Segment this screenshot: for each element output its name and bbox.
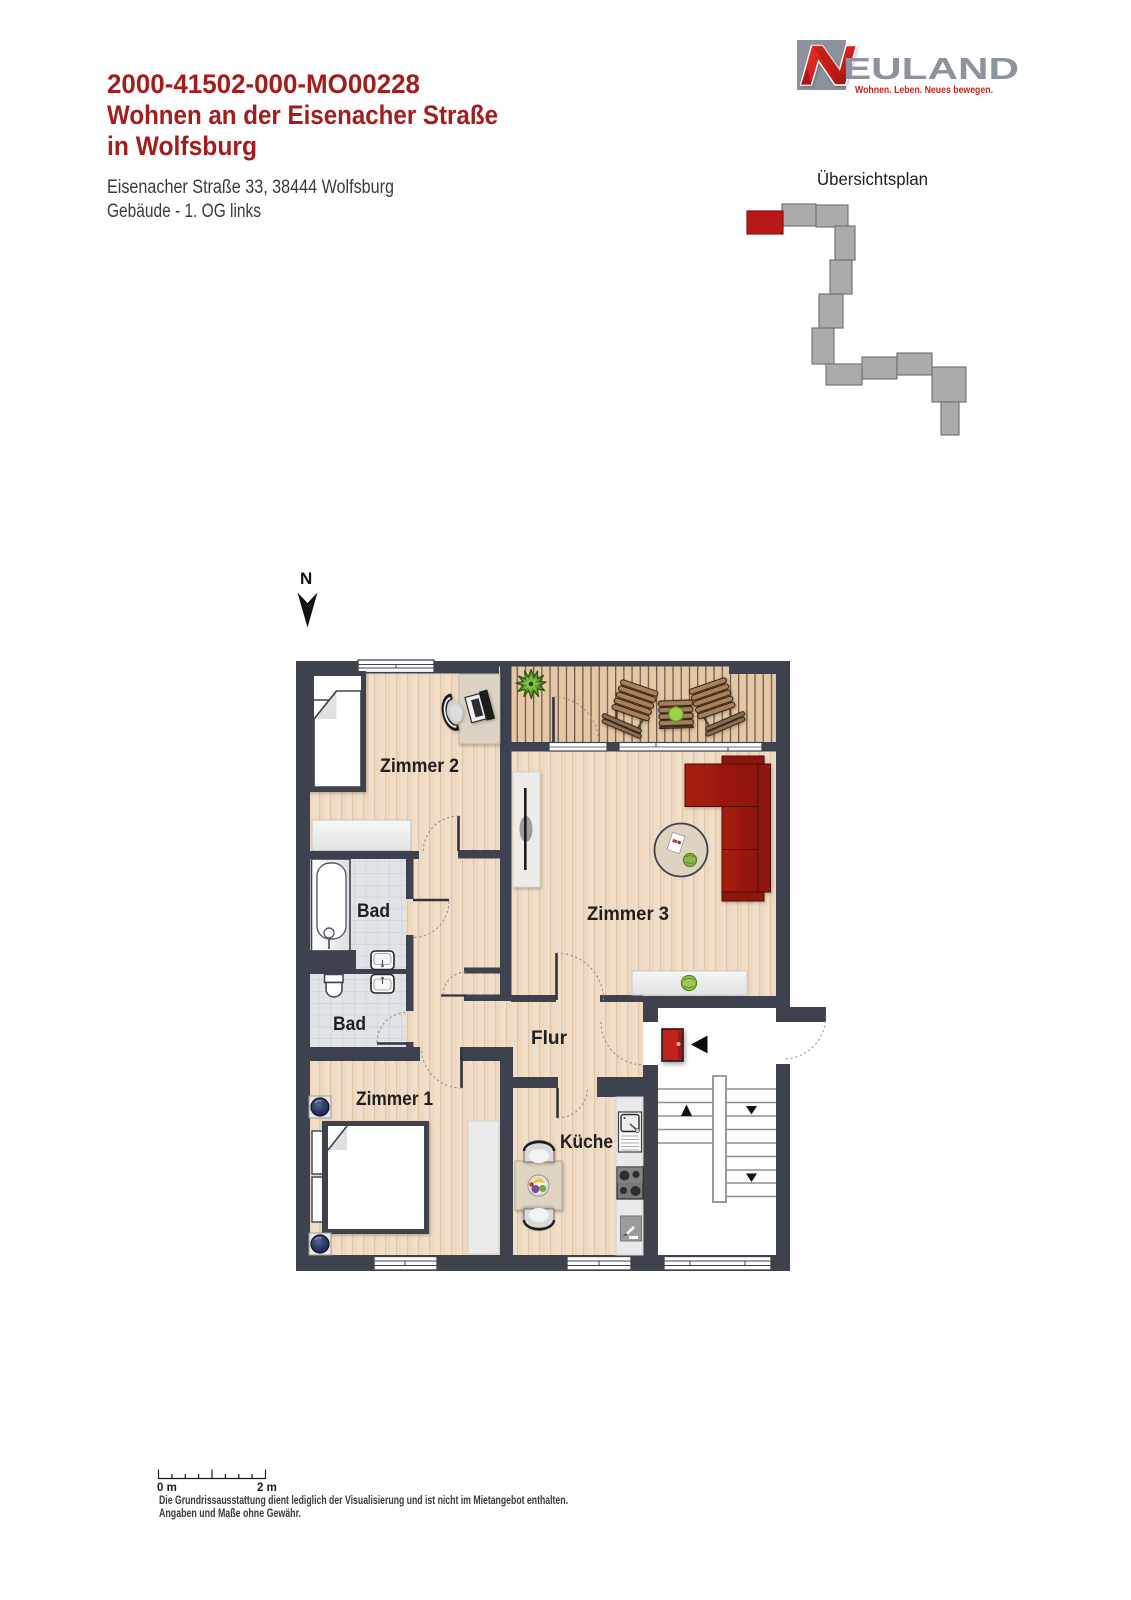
svg-text:Zimmer 3: Zimmer 3 [587,904,669,925]
svg-text:0 m: 0 m [157,1482,177,1494]
svg-text:N: N [300,569,312,588]
svg-text:Küche: Küche [560,1132,613,1153]
svg-text:2000-41502-000-MO00228: 2000-41502-000-MO00228 [107,69,420,99]
svg-text:Zimmer 1: Zimmer 1 [356,1089,433,1110]
svg-text:Eisenacher Straße 33, 38444 Wo: Eisenacher Straße 33, 38444 Wolfsburg [107,177,394,198]
svg-text:2 m: 2 m [257,1482,277,1494]
svg-text:Wohnen. Leben. Neues bewegen.: Wohnen. Leben. Neues bewegen. [855,84,993,96]
svg-text:Flur: Flur [531,1028,568,1049]
svg-text:Angaben und Maße ohne Gewähr.: Angaben und Maße ohne Gewähr. [159,1508,301,1520]
svg-text:EULAND: EULAND [843,51,1019,86]
svg-text:Gebäude - 1. OG links: Gebäude - 1. OG links [107,201,261,222]
svg-text:Bad: Bad [333,1014,366,1035]
svg-text:Bad: Bad [357,901,390,922]
svg-text:Die Grundrissausstattung dient: Die Grundrissausstattung dient lediglich… [159,1495,568,1507]
svg-text:Zimmer 2: Zimmer 2 [380,756,459,777]
svg-text:Wohnen an der Eisenacher Straß: Wohnen an der Eisenacher Straße [107,100,498,130]
svg-text:in Wolfsburg: in Wolfsburg [107,131,257,161]
svg-text:Übersichtsplan: Übersichtsplan [817,169,928,189]
